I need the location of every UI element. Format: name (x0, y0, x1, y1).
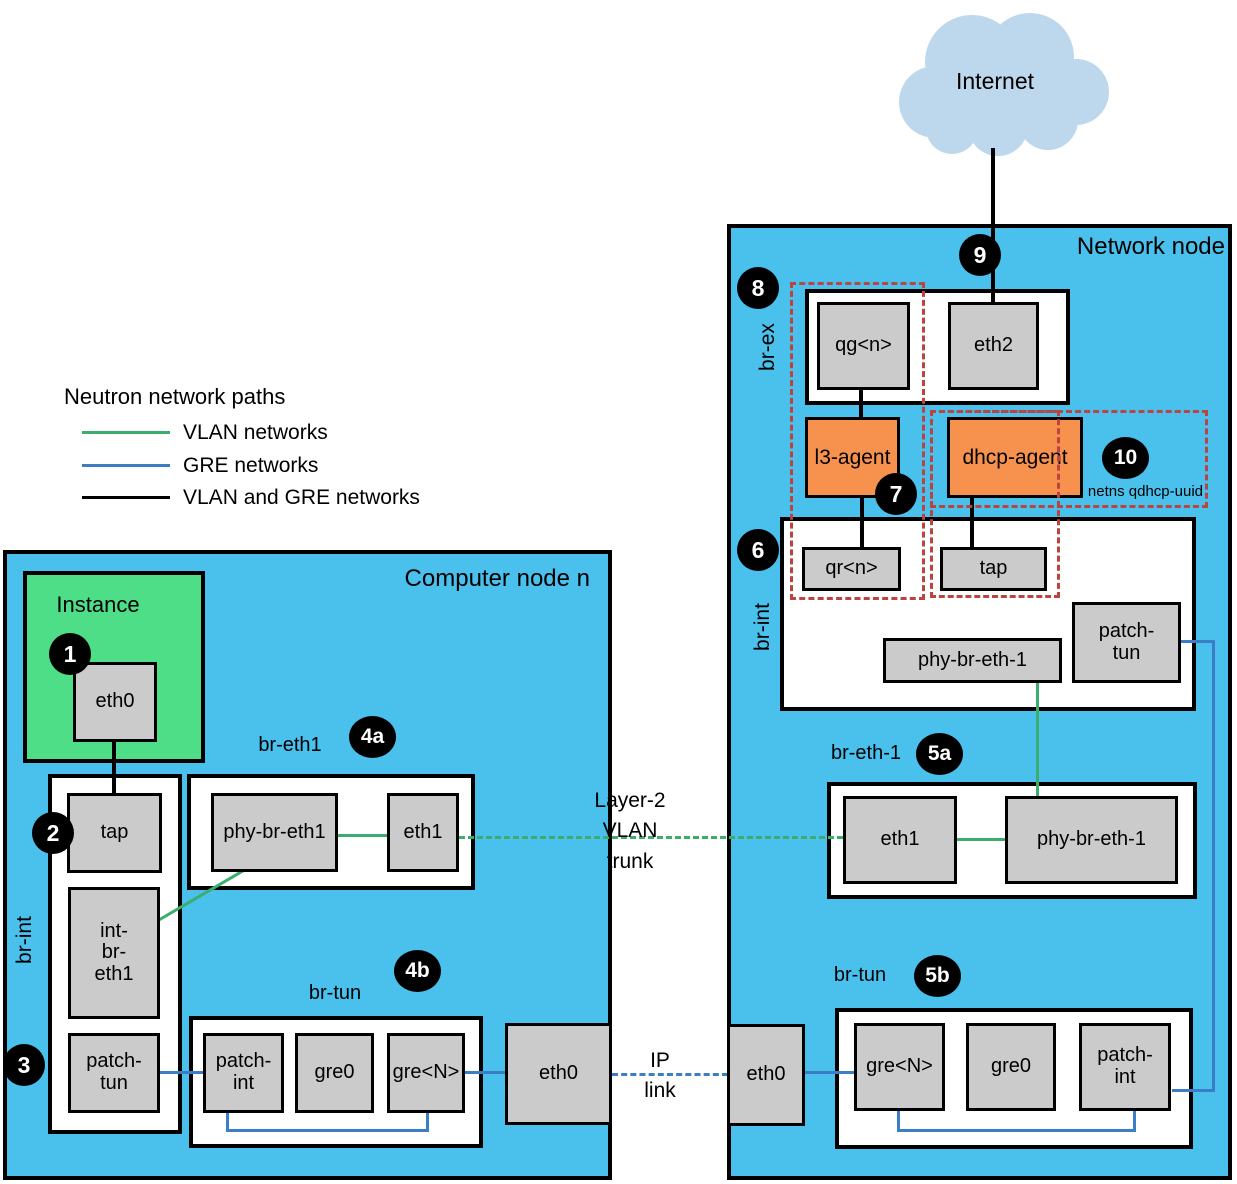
port-patch-tun-network: patch- tun (1072, 602, 1181, 683)
port-phy-br-eth1-compute: phy-br-eth1 (211, 793, 338, 872)
port-eth0-compute: eth0 (505, 1023, 612, 1125)
line-phy-vertical-network (1036, 683, 1039, 796)
line-patchtun-right (1181, 640, 1215, 643)
legend-vlan-gre-line (82, 496, 170, 499)
line-gren-eth0-compute (465, 1071, 505, 1074)
port-eth0-instance: eth0 (73, 662, 157, 742)
port-eth1-network: eth1 (843, 796, 957, 884)
legend-gre-label: GRE networks (183, 454, 318, 478)
br-tun-network-label: br-tun (810, 964, 910, 987)
port-eth2: eth2 (948, 302, 1039, 390)
netns-qdhcp-outline-tall (930, 410, 1060, 598)
badge-1: 1 (49, 633, 91, 675)
legend-vlan-gre-label: VLAN and GRE networks (183, 486, 420, 510)
port-eth0-network: eth0 (727, 1024, 805, 1126)
legend-title: Neutron network paths (64, 384, 285, 410)
line-u-left-network (897, 1111, 900, 1130)
network-node-title: Network node (885, 233, 1225, 261)
port-tap-compute: tap (67, 793, 162, 873)
line-u-bottom-network (897, 1129, 1136, 1132)
badge-6: 6 (737, 529, 779, 571)
port-phy-br-eth-1-brint: phy-br-eth-1 (883, 638, 1062, 683)
line-eth1-phy-network (957, 838, 1005, 841)
line-eth0-tap (112, 742, 116, 793)
badge-7: 7 (875, 473, 917, 515)
badge-10: 10 (1102, 437, 1149, 479)
br-int-network-label: br-int (751, 577, 775, 677)
badge-8: 8 (737, 267, 779, 309)
port-gren-network: gre<N> (854, 1023, 945, 1111)
instance-label: Instance (23, 592, 173, 618)
ip-link-label: IP link (620, 1046, 700, 1107)
legend-gre-line (82, 464, 170, 467)
legend-vlan-label: VLAN networks (183, 421, 328, 445)
port-gre0-compute: gre0 (295, 1033, 374, 1113)
port-patch-tun-compute: patch- tun (68, 1033, 160, 1113)
netns-qdhcp-label: netns qdhcp-uuid (1085, 483, 1203, 500)
br-int-compute-label: br-int (13, 890, 37, 990)
port-patch-int-network: patch- int (1079, 1023, 1171, 1111)
port-patch-int-compute: patch- int (203, 1033, 284, 1113)
port-eth1-compute: eth1 (387, 793, 459, 872)
br-eth1-compute-label: br-eth1 (240, 734, 340, 757)
badge-4a: 4a (349, 716, 396, 758)
internet-link-line (991, 148, 995, 304)
badge-4b: 4b (394, 950, 441, 992)
compute-node-title: Computer node n (250, 565, 590, 593)
badge-5b: 5b (914, 955, 961, 997)
badge-5a: 5a (916, 733, 963, 775)
port-phy-br-eth-1-network: phy-br-eth-1 (1005, 796, 1178, 884)
br-ex-label: br-ex (756, 297, 780, 397)
diagram-canvas: Neutron network paths VLAN networks GRE … (0, 0, 1237, 1184)
line-patchint-right (1172, 1089, 1215, 1092)
line-patchtun-vertical (1212, 640, 1215, 1092)
port-gre0-network: gre0 (966, 1023, 1056, 1111)
br-eth-1-label: br-eth-1 (816, 742, 916, 765)
vlan-trunk-label: Layer-2 VLAN trunk (580, 786, 680, 877)
br-tun-compute-label: br-tun (285, 982, 385, 1005)
line-u-right-network (1133, 1111, 1136, 1130)
line-phy-eth1-compute (338, 834, 387, 837)
badge-3: 3 (3, 1044, 45, 1086)
line-u-right-compute (426, 1113, 429, 1132)
badge-2: 2 (32, 812, 74, 854)
netns-qrouter-outline (790, 282, 925, 600)
legend-vlan-line (82, 431, 170, 434)
badge-9: 9 (959, 234, 1001, 276)
internet-label: Internet (930, 68, 1060, 95)
port-int-br-eth1: int- br- eth1 (68, 887, 160, 1019)
line-eth0-gren-network (805, 1071, 854, 1074)
line-u-bottom-compute (226, 1129, 429, 1132)
port-gren-compute: gre<N> (387, 1033, 465, 1113)
line-patchtun-patchint (160, 1071, 203, 1074)
